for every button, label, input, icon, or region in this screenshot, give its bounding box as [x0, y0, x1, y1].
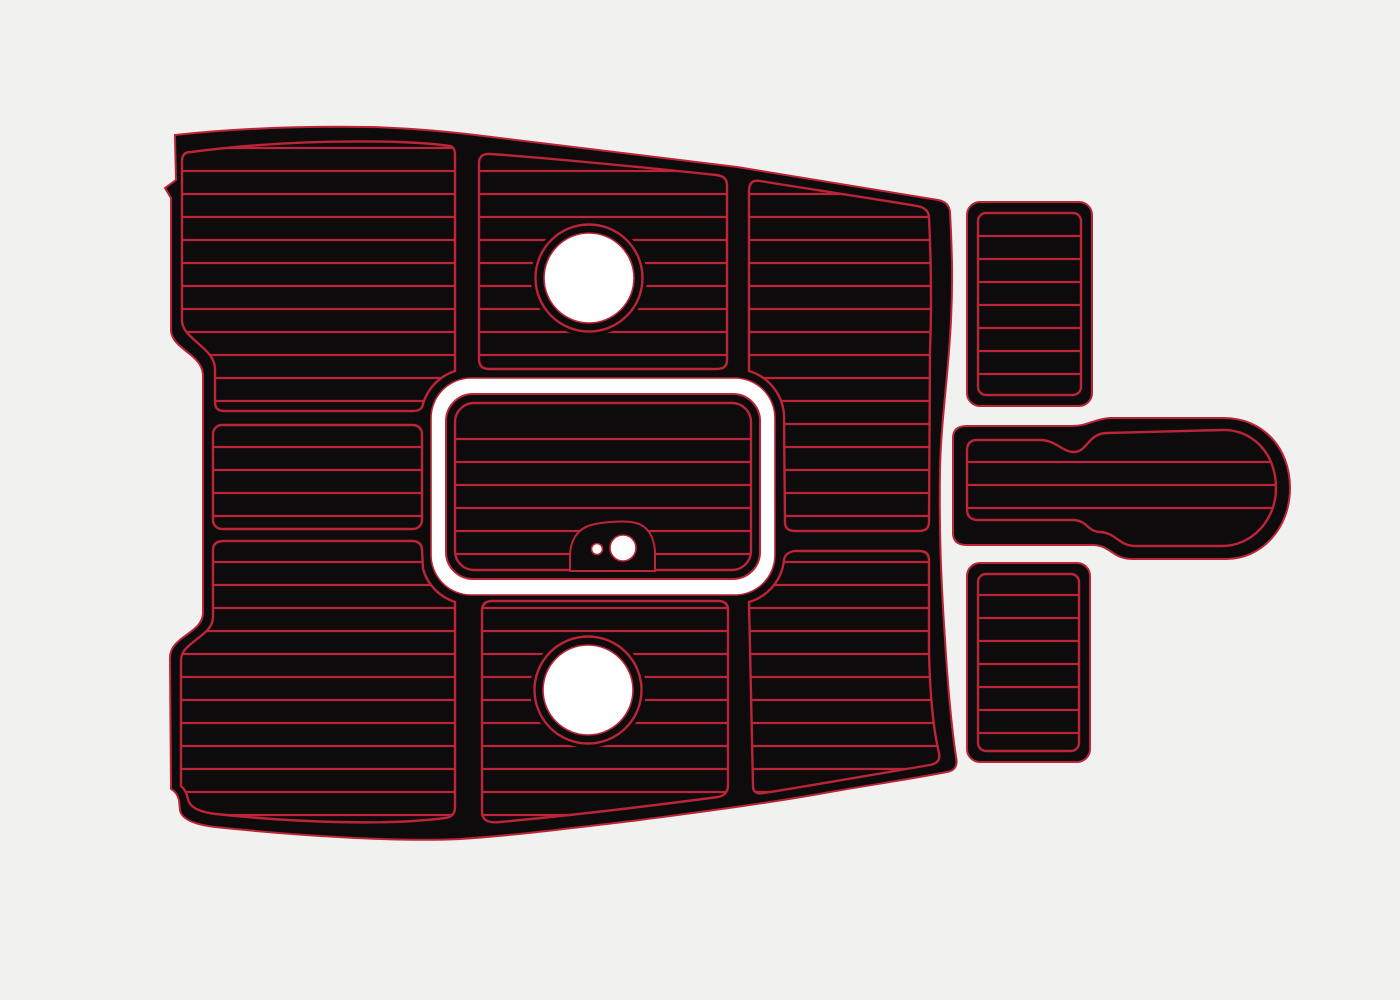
top-right-step-pad [967, 202, 1092, 406]
middle-right-step-pad [953, 418, 1290, 559]
pad-set-drawing [0, 0, 1400, 1000]
main-cockpit-pad [150, 127, 965, 840]
eva-foam-pad-product-image [0, 0, 1400, 1000]
upper-round-hatch-cutout [531, 220, 647, 336]
lower-round-hatch-cutout [530, 632, 646, 748]
hatch-latch-keyhole [570, 522, 655, 571]
bottom-right-step-pad [967, 563, 1090, 762]
